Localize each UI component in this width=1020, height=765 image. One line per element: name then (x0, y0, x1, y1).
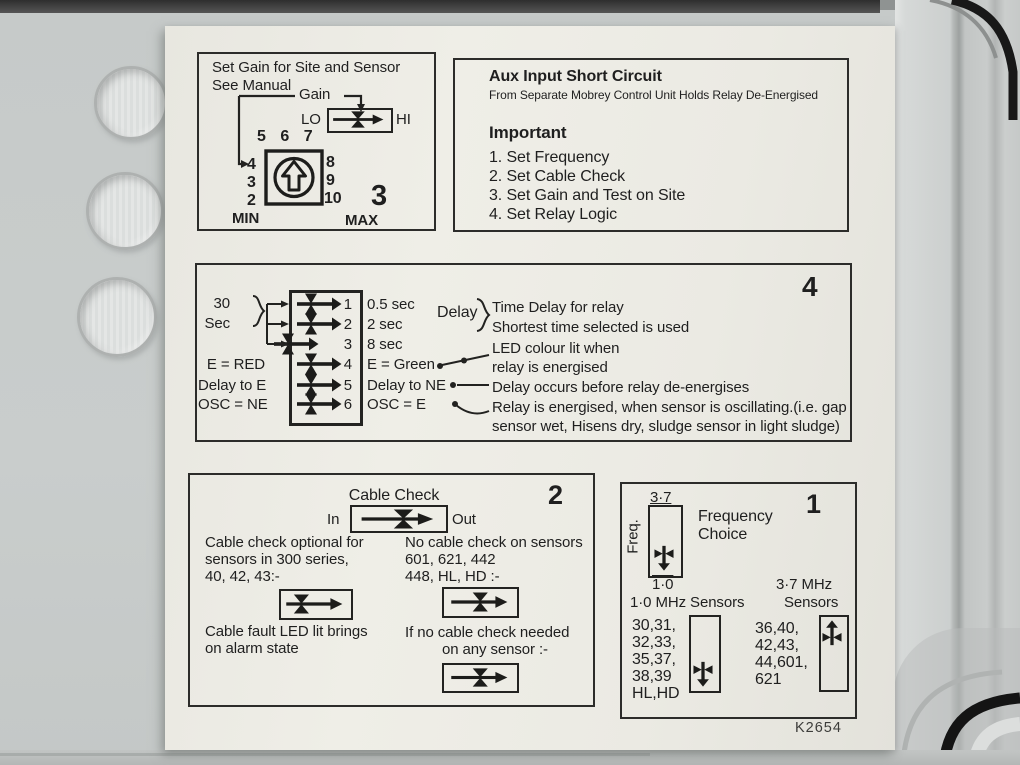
dip-row-number-1: 1 (338, 296, 352, 313)
panel-hole-3 (77, 277, 157, 357)
toggle-switch-icon (654, 545, 674, 571)
mhz10-switch (689, 615, 721, 693)
mhz10-sensors-2: 32,33, (632, 634, 676, 651)
cable-optional-3: 40, 42, 43:- (205, 568, 280, 585)
toggle-switch-icon (273, 333, 319, 355)
gain-lo-label: LO (301, 111, 321, 128)
toggle-switch-icon (296, 353, 342, 375)
relay-right-label-6: OSC = E (367, 396, 426, 413)
relay-left-label-6: OSC = NE (198, 396, 265, 413)
toggle-switch-icon (360, 509, 434, 529)
photo-stage: Set Gain for Site and Sensor See Manual … (0, 0, 1020, 765)
aux-step-4: 4. Set Relay Logic (489, 206, 617, 223)
rotary-dial-icon (264, 149, 324, 206)
mhz37-header-2: Sensors (784, 594, 838, 611)
mhz10-sensors-3: 35,37, (632, 651, 676, 668)
lid-bottom-corner (893, 628, 1020, 765)
aux-step-3: 3. Set Gain and Test on Site (489, 187, 685, 204)
toggle-switch-icon (296, 293, 342, 315)
toggle-switch-icon (822, 620, 842, 646)
relay-right-label-2: 2 sec (367, 316, 402, 333)
cable-none-switch (442, 587, 519, 618)
dip-row-number-5: 5 (338, 377, 352, 394)
enclosure-bottom-line (0, 753, 650, 756)
mhz37-switch (819, 615, 849, 692)
cable-optional-2: sensors in 300 series, (205, 551, 349, 568)
dip-row-number-3: 3 (338, 336, 352, 353)
cable-title: Cable Check (324, 487, 464, 504)
freq-top-value: 3·7 (650, 489, 671, 506)
dial-left-4: 4 (247, 156, 256, 173)
aux-heading: Important (489, 124, 566, 141)
mhz10-header: 1·0 MHz Sensors (630, 594, 744, 611)
freq-bottom-value: 1·0 (652, 576, 673, 593)
freq-switch (648, 505, 683, 578)
aux-step-2: 2. Set Cable Check (489, 168, 625, 185)
cable-nocheck-switch (442, 663, 519, 693)
toggle-switch-icon (332, 111, 384, 128)
gain-switch (327, 108, 393, 133)
toggle-switch-icon (450, 668, 508, 687)
gain-title-line2: See Manual (212, 77, 291, 94)
relay-box-number: 4 (802, 273, 818, 301)
cable-none-1: No cable check on sensors (405, 534, 583, 551)
note-osc-2: sensor wet, Hisens dry, sludge sensor in… (492, 418, 840, 435)
relay-right-label-1: 0.5 sec (367, 296, 415, 313)
cable-out-label: Out (452, 511, 476, 528)
cable-nocheck-1: If no cable check needed (405, 624, 569, 641)
panel-hole-1 (94, 66, 168, 140)
dip-row-number-2: 2 (338, 316, 352, 333)
dial-left-2: 2 (247, 192, 256, 209)
cable-fault-1: Cable fault LED lit brings (205, 623, 367, 640)
toggle-switch-icon (296, 393, 342, 415)
dip-row-number-4: 4 (338, 356, 352, 373)
mhz37-sensors-4: 621 (755, 671, 781, 688)
mhz10-sensors-1: 30,31, (632, 617, 676, 634)
dial-max-label: MAX (345, 212, 378, 229)
mhz37-sensors-3: 44,601, (755, 654, 808, 671)
cable-box-number: 2 (548, 481, 563, 509)
cable-in-label: In (327, 511, 339, 528)
dial-left-3: 3 (247, 174, 256, 191)
dip-row-number-6: 6 (338, 396, 352, 413)
cable-nocheck-2: on any sensor :- (442, 641, 548, 658)
gain-label: Gain (299, 86, 330, 103)
dial-min-label: MIN (232, 210, 259, 227)
freq-axis-label: Freq. (625, 517, 642, 557)
gain-hi-label: HI (396, 111, 411, 128)
mhz37-sensors-1: 36,40, (755, 620, 799, 637)
relay-right-label-3: 8 sec (367, 336, 402, 353)
note-delay-1: Time Delay for relay (492, 299, 624, 316)
toggle-switch-icon (296, 313, 342, 335)
aux-title: Aux Input Short Circuit (489, 68, 662, 85)
toggle-switch-icon (285, 594, 343, 614)
label-code: K2654 (795, 720, 842, 737)
note-led-2: relay is energised (492, 359, 608, 376)
gain-title-line1: Set Gain for Site and Sensor (212, 59, 400, 76)
note-delay-2: Shortest time selected is used (492, 319, 689, 336)
note-ne: Delay occurs before relay de-energises (492, 379, 749, 396)
delay-label: Delay (437, 304, 477, 321)
toggle-switch-icon (450, 592, 508, 612)
relay-left-label-4: E = RED (205, 356, 265, 373)
dial-right-8: 8 (326, 154, 335, 171)
enclosure-top-edge (0, 0, 880, 13)
freq-box: 3·7 Freq. 1·0 Frequency Choice 1 3·7 MHz… (620, 482, 857, 719)
dial-right-10: 10 (324, 190, 342, 207)
relay-box: 1 2 3 4 5 6 30 Sec E = RED Delay to E OS… (195, 263, 852, 442)
note-led-1: LED colour lit when (492, 340, 619, 357)
cable-box: Cable Check 2 In Out Cable check optiona… (188, 473, 595, 707)
relay-right-label-4: E = Green (367, 356, 435, 373)
freq-choice-2: Choice (698, 526, 747, 543)
aux-box: Aux Input Short Circuit From Separate Mo… (453, 58, 849, 232)
cable-none-3: 448, HL, HD :- (405, 568, 499, 585)
relay-right-label-5: Delay to NE (367, 377, 446, 394)
relay-left-label-5: Delay to E (198, 377, 265, 394)
cable-none-2: 601, 621, 442 (405, 551, 495, 568)
toggle-switch-icon (693, 661, 713, 687)
panel-hole-2 (86, 172, 164, 250)
mhz37-sensors-2: 42,43, (755, 637, 799, 654)
gain-box-number: 3 (371, 182, 387, 210)
delay-group-30: 30 (205, 295, 230, 312)
freq-box-number: 1 (806, 490, 821, 518)
aux-subtitle: From Separate Mobrey Control Unit Holds … (489, 87, 818, 104)
gain-box: Set Gain for Site and Sensor See Manual … (197, 52, 436, 231)
aux-step-1: 1. Set Frequency (489, 149, 609, 166)
delay-group-sec: Sec (198, 315, 230, 332)
mhz10-sensors-5: HL,HD (632, 685, 680, 702)
mhz10-sensors-4: 38,39 (632, 668, 672, 685)
instruction-label: Set Gain for Site and Sensor See Manual … (165, 26, 895, 750)
cable-optional-1: Cable check optional for (205, 534, 364, 551)
dial-right-9: 9 (326, 172, 335, 189)
note-osc-1: Relay is energised, when sensor is oscil… (492, 399, 847, 416)
dial-top-digits: 5 6 7 (257, 128, 318, 145)
freq-choice-1: Frequency (698, 508, 773, 525)
cable-check-switch (350, 505, 448, 533)
cable-optional-switch (279, 589, 353, 620)
mhz37-header-1: 3·7 MHz (776, 576, 832, 593)
cable-fault-2: on alarm state (205, 640, 299, 657)
